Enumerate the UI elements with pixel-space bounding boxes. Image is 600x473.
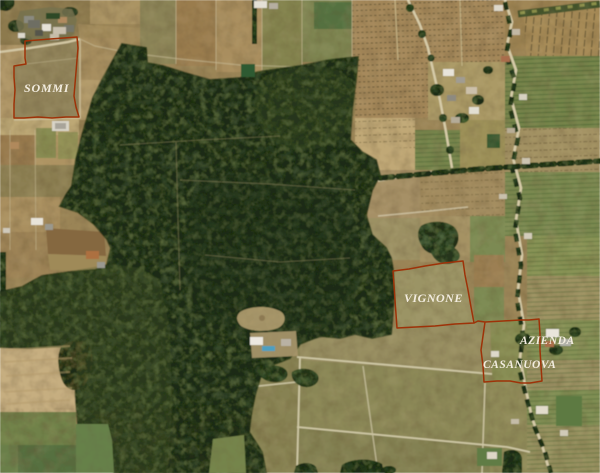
svg-text:VIGNONE: VIGNONE [404,291,463,305]
svg-text:CASANUOVA: CASANUOVA [483,359,556,371]
svg-text:AZIENDA: AZIENDA [519,335,575,347]
svg-text:SOMMI: SOMMI [24,81,70,95]
